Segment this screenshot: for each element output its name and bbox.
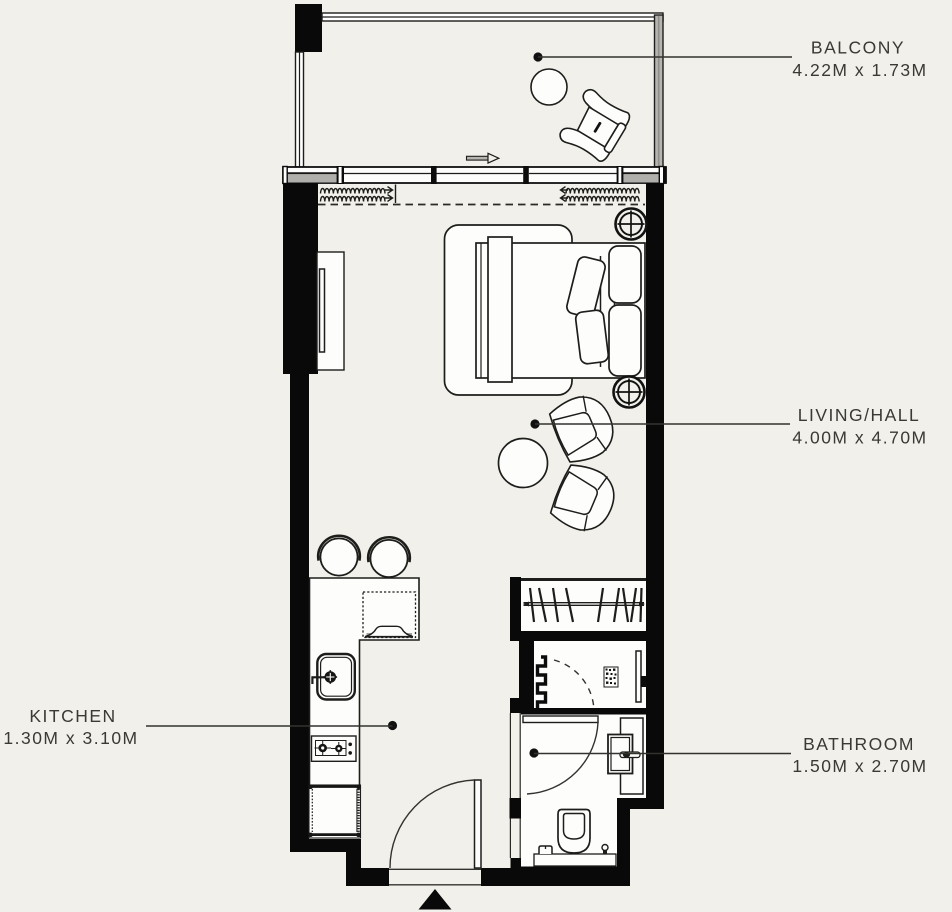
- svg-text:1.50M x 2.70M: 1.50M x 2.70M: [792, 756, 927, 776]
- svg-text:4.22M x 1.73M: 4.22M x 1.73M: [792, 60, 927, 80]
- svg-text:LIVING/HALL: LIVING/HALL: [798, 405, 921, 425]
- svg-text:KITCHEN: KITCHEN: [29, 706, 116, 726]
- svg-text:4.00M x 4.70M: 4.00M x 4.70M: [792, 428, 927, 448]
- svg-text:BALCONY: BALCONY: [811, 38, 905, 58]
- svg-text:BATHROOM: BATHROOM: [803, 734, 915, 754]
- svg-text:1.30M x 3.10M: 1.30M x 3.10M: [3, 728, 138, 748]
